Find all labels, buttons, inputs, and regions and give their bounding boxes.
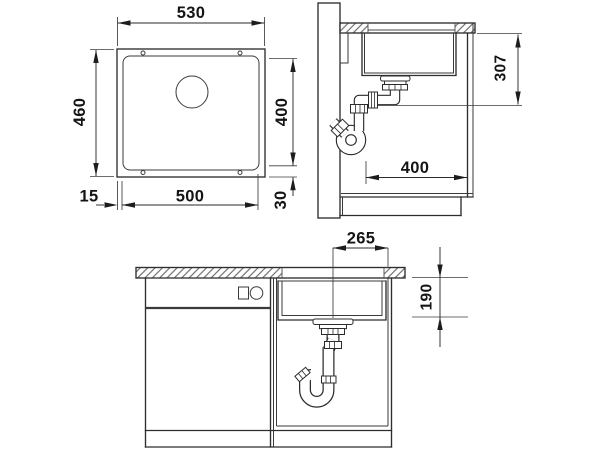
dim-label-400-side: 400 — [401, 159, 429, 177]
sink-cabinet — [146, 278, 392, 447]
mounting-screw — [141, 171, 145, 175]
strainer-side — [381, 76, 411, 90]
bowl-front — [278, 281, 386, 320]
plan-view: 530 460 400 500 — [71, 4, 297, 210]
mounting-screw — [141, 51, 145, 55]
control-knob — [250, 287, 263, 300]
strainer-front — [313, 319, 353, 335]
dim-cutout-width: 500 15 — [80, 174, 258, 210]
sink-technical-drawing: 530 460 400 500 — [0, 0, 600, 450]
drain-hole — [176, 76, 208, 108]
dim-label-30: 30 — [272, 191, 290, 210]
dim-drain-offset: 265 — [333, 230, 388, 267]
dim-label-190: 190 — [419, 284, 436, 311]
coupling-nut — [322, 376, 337, 383]
appliance-cabinet — [146, 278, 271, 447]
coupling-nut — [369, 92, 378, 108]
dim-cutout-depth: 400 — [269, 59, 297, 166]
dim-label-265: 265 — [347, 230, 375, 248]
display-window — [239, 287, 249, 299]
drain-trap-side — [331, 88, 395, 150]
coupling-nut — [325, 342, 342, 349]
dim-drain-height: 307 — [477, 34, 522, 105]
dim-front-offset: 30 — [269, 177, 297, 209]
dim-label-307: 307 — [493, 55, 510, 82]
dim-label-15: 15 — [80, 188, 99, 206]
dim-outer-width: 530 — [118, 4, 265, 46]
coupling-nut — [351, 105, 368, 114]
dim-label-530: 530 — [177, 4, 205, 22]
drawing-canvas: 530 460 400 500 — [0, 0, 600, 450]
dim-drain-setback: 400 — [366, 159, 467, 184]
bowl-section-inner — [365, 33, 454, 73]
sink-outer-outline — [117, 49, 265, 177]
bowl-section-outer — [362, 33, 456, 76]
dim-bowl-depth: 190 — [412, 247, 468, 347]
wall-section — [318, 3, 340, 218]
sink-bowl-outline — [123, 56, 259, 170]
dim-label-460: 460 — [71, 98, 89, 126]
mounting-screw — [238, 171, 242, 175]
front-view: 265 190 — [136, 230, 468, 448]
dim-outer-depth: 460 — [71, 50, 114, 177]
drain-trap-front — [295, 319, 353, 402]
dim-label-500: 500 — [176, 188, 204, 206]
dim-label-400-plan: 400 — [273, 98, 291, 126]
back-rail — [340, 33, 348, 63]
mounting-screw — [238, 51, 242, 55]
side-view: 307 400 — [318, 3, 522, 218]
